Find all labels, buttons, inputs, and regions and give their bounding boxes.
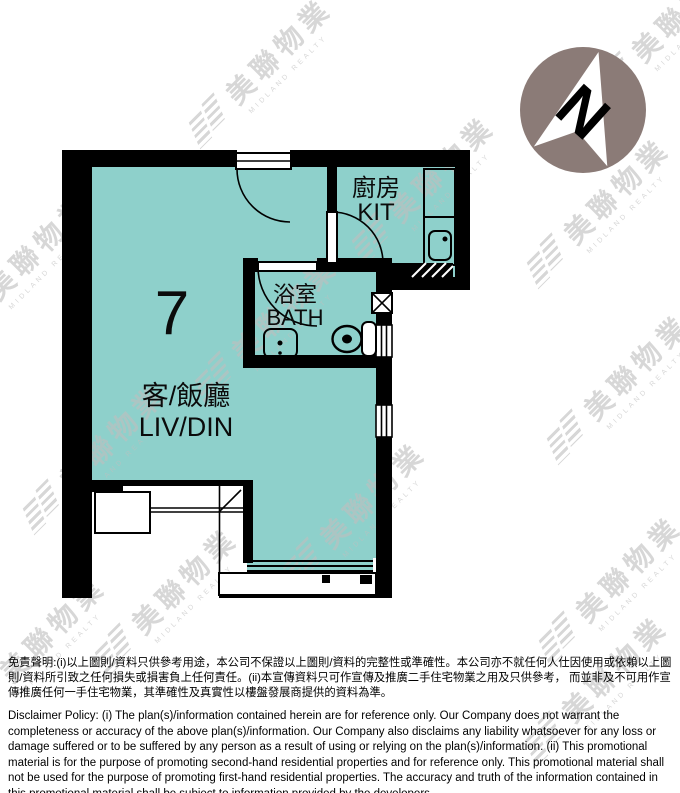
disclaimer-chinese: 免責聲明:(i)以上圖則/資料只供參考用途，本公司不保證以上圖則/資料的完整性或… <box>8 656 674 701</box>
midland-watermark: 美聯物業 MIDLAND REALTY <box>584 0 680 114</box>
midland-watermark: 美聯物業 MIDLAND REALTY <box>516 128 680 296</box>
midland-watermark: 美聯物業 MIDLAND REALTY <box>536 304 680 472</box>
midland-watermark: 美聯物業 MIDLAND REALTY <box>12 374 180 542</box>
midland-watermark: 美聯物業 MIDLAND REALTY <box>341 106 509 274</box>
watermark-text-zh: 美聯物業 <box>50 374 174 498</box>
watermark-row: 美聯物業 <box>12 374 175 537</box>
watermark-text-zh: 美聯物業 <box>122 518 246 642</box>
watermark-row: 美聯物業 <box>536 304 680 467</box>
watermark-row: 美聯物業 <box>184 246 347 409</box>
midland-watermark: 美聯物業 MIDLAND REALTY <box>272 432 440 600</box>
watermark-text-zh: 美聯物業 <box>554 128 678 252</box>
watermark-text-zh: 美聯物業 <box>379 106 503 230</box>
midland-watermark: 美聯物業 MIDLAND REALTY <box>0 184 106 352</box>
watermark-text-zh: 美聯物業 <box>222 246 346 370</box>
watermark-row: 美聯物業 <box>516 128 679 291</box>
watermark-text-zh: 美聯物業 <box>310 432 434 556</box>
midland-watermark: 美聯物業 MIDLAND REALTY <box>178 0 346 156</box>
floorplan-page: 美聯物業 MIDLAND REALTY 美聯物業 MIDLAND REALTY … <box>0 0 680 793</box>
disclaimer-english: Disclaimer Policy: (i) The plan(s)/infor… <box>8 709 674 793</box>
watermark-text-zh: 美聯物業 <box>0 184 100 308</box>
watermark-text-zh: 美聯物業 <box>216 0 340 112</box>
watermark-row: 美聯物業 <box>341 106 504 269</box>
watermark-row: 美聯物業 <box>178 0 341 150</box>
disclaimer-block: 免責聲明:(i)以上圖則/資料只供參考用途，本公司不保證以上圖則/資料的完整性或… <box>8 656 674 793</box>
watermark-row: 美聯物業 <box>272 432 435 595</box>
midland-watermark: 美聯物業 MIDLAND REALTY <box>184 246 352 414</box>
